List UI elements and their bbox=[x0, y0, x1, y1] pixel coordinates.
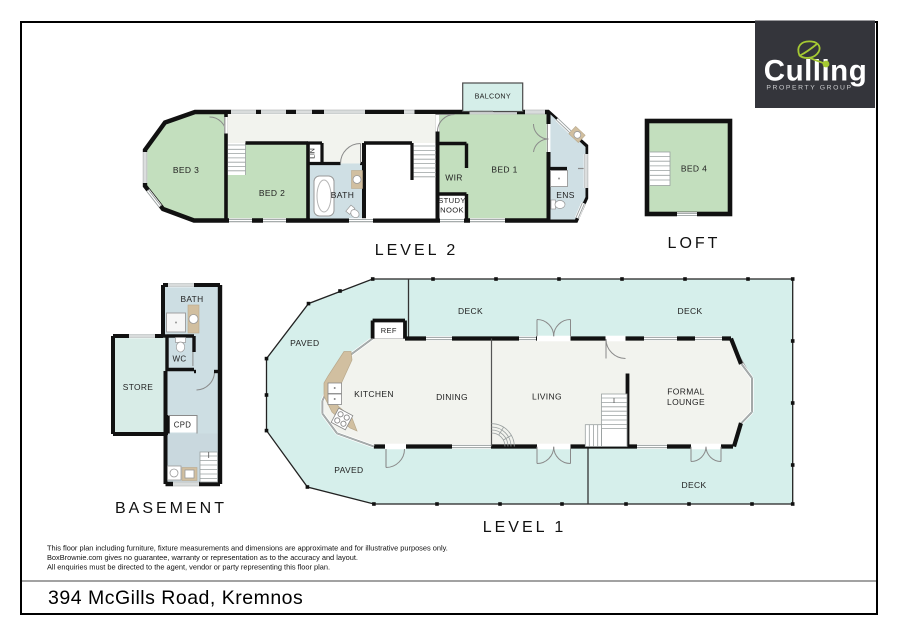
svg-text:LOUNGE: LOUNGE bbox=[667, 397, 705, 407]
svg-text:BED 2: BED 2 bbox=[259, 188, 285, 198]
svg-text:WC: WC bbox=[172, 355, 186, 364]
svg-text:LOFT: LOFT bbox=[668, 235, 721, 252]
svg-text:LEVEL 1: LEVEL 1 bbox=[483, 519, 567, 536]
svg-text:BED 3: BED 3 bbox=[173, 165, 199, 175]
svg-text:FORMAL: FORMAL bbox=[667, 387, 705, 397]
svg-text:CPD: CPD bbox=[174, 421, 192, 430]
svg-text:DINING: DINING bbox=[436, 392, 468, 402]
svg-text:REF: REF bbox=[381, 326, 397, 335]
svg-text:PAVED: PAVED bbox=[334, 465, 363, 475]
svg-text:LIVING: LIVING bbox=[532, 392, 562, 402]
svg-text:NOOK: NOOK bbox=[440, 206, 464, 215]
svg-text:BATH: BATH bbox=[180, 294, 203, 304]
svg-text:KITCHEN: KITCHEN bbox=[354, 389, 394, 399]
svg-text:ENS: ENS bbox=[556, 190, 575, 200]
svg-text:LEVEL 2: LEVEL 2 bbox=[375, 242, 459, 259]
svg-text:BALCONY: BALCONY bbox=[475, 92, 511, 101]
svg-text:STUDY: STUDY bbox=[438, 196, 466, 205]
svg-text:This floor plan including furn: This floor plan including furniture, fix… bbox=[47, 544, 448, 553]
svg-text:STORE: STORE bbox=[123, 382, 154, 392]
svg-text:WIR: WIR bbox=[445, 173, 463, 183]
svg-text:PAVED: PAVED bbox=[290, 338, 319, 348]
svg-text:DECK: DECK bbox=[677, 306, 702, 316]
svg-text:PROPERTY GROUP: PROPERTY GROUP bbox=[766, 85, 852, 92]
svg-text:BASEMENT: BASEMENT bbox=[115, 500, 227, 517]
svg-text:BATH: BATH bbox=[331, 190, 354, 200]
svg-text:DECK: DECK bbox=[458, 306, 483, 316]
svg-text:DECK: DECK bbox=[681, 480, 706, 490]
svg-text:LIN: LIN bbox=[310, 148, 317, 159]
svg-text:394 McGills Road, Kremnos: 394 McGills Road, Kremnos bbox=[48, 587, 303, 609]
svg-text:BoxBrownie.com gives no guaran: BoxBrownie.com gives no guarantee, warra… bbox=[47, 553, 358, 562]
svg-text:BED 1: BED 1 bbox=[491, 165, 517, 175]
svg-text:BED 4: BED 4 bbox=[681, 164, 707, 174]
svg-text:All enquiries must be directed: All enquiries must be directed to the ag… bbox=[47, 563, 330, 572]
